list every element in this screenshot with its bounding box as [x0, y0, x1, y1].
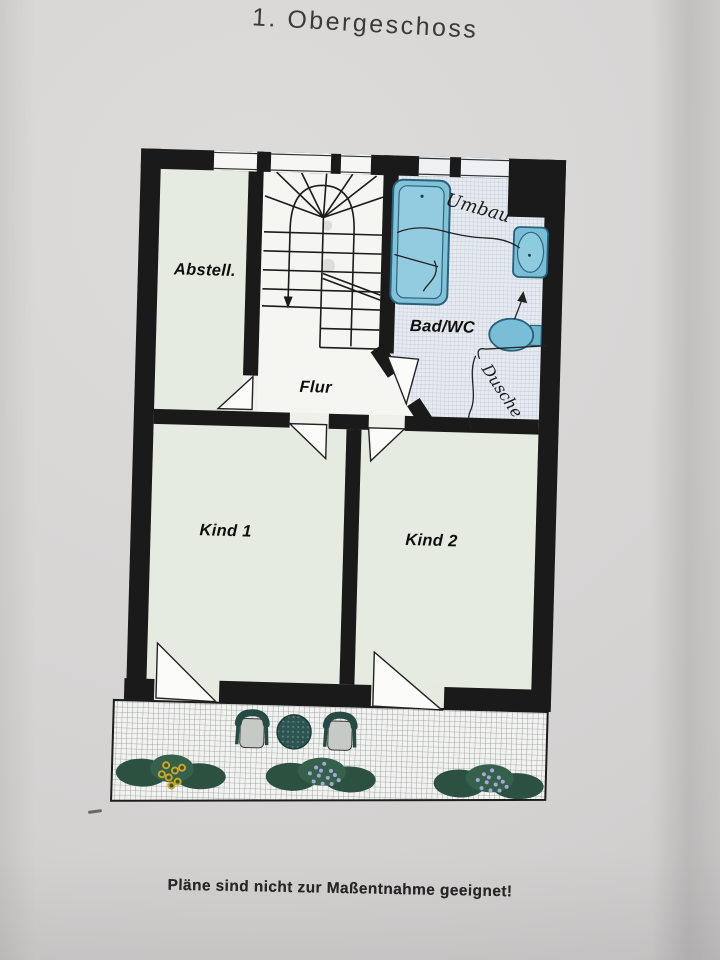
sink: [513, 227, 548, 278]
scanned-floorplan-page: { "page": { "title": "1. Obergeschoss", …: [0, 0, 720, 960]
room-label-bad: Bad/WC: [410, 317, 476, 337]
page-title: 1. Obergeschoss: [251, 3, 492, 45]
paper-shadow-right: [650, 0, 720, 960]
room-kind2-floor: [354, 430, 538, 690]
stray-pen-mark: [88, 809, 102, 814]
room-label-flur: Flur: [299, 378, 333, 397]
room-abstell-floor: [154, 169, 249, 411]
room-kind1-floor: [146, 424, 346, 684]
floor-plan: Umbau Dusche Abstell. Flur Bad/WC Kind 1…: [109, 140, 568, 828]
room-label-kind2: Kind 2: [405, 531, 458, 550]
room-label-abstell: Abstell.: [173, 260, 236, 280]
paper-shadow-bottom: [0, 850, 720, 960]
room-label-kind1: Kind 1: [199, 521, 252, 540]
paper-shadow-left: [0, 0, 40, 960]
balcony-table: [277, 714, 312, 749]
bathtub: [390, 179, 450, 305]
floor-plan-drawing: Umbau Dusche Abstell. Flur Bad/WC Kind 1…: [109, 140, 568, 828]
